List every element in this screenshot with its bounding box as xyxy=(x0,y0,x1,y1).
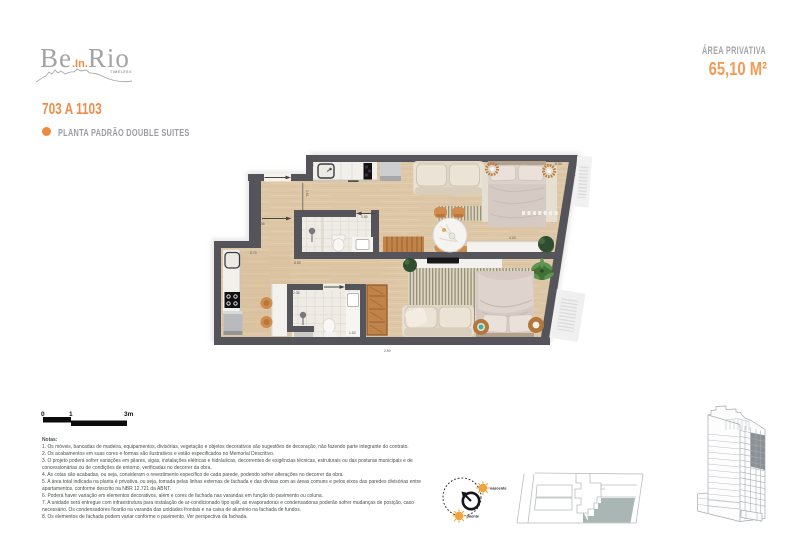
svg-text:3m: 3m xyxy=(124,411,134,418)
svg-text:1: 1 xyxy=(69,411,73,418)
svg-text:0: 0 xyxy=(41,411,45,418)
svg-text:0.80: 0.80 xyxy=(361,215,368,219)
svg-text:8.70: 8.70 xyxy=(250,251,257,255)
svg-text:1.06: 1.06 xyxy=(258,222,265,226)
svg-text:1.50: 1.50 xyxy=(349,331,356,335)
svg-text:2.36: 2.36 xyxy=(293,291,300,295)
svg-text:7.15: 7.15 xyxy=(219,338,226,342)
svg-text:8.34: 8.34 xyxy=(555,162,562,166)
svg-text:1.61: 1.61 xyxy=(305,190,309,197)
svg-text:nascente: nascente xyxy=(490,487,506,491)
svg-text:8.55: 8.55 xyxy=(294,261,301,265)
svg-text:poente: poente xyxy=(467,515,479,519)
svg-text:2.50: 2.50 xyxy=(384,349,391,353)
svg-text:1.65: 1.65 xyxy=(310,160,314,167)
svg-text:4.03: 4.03 xyxy=(509,236,516,240)
